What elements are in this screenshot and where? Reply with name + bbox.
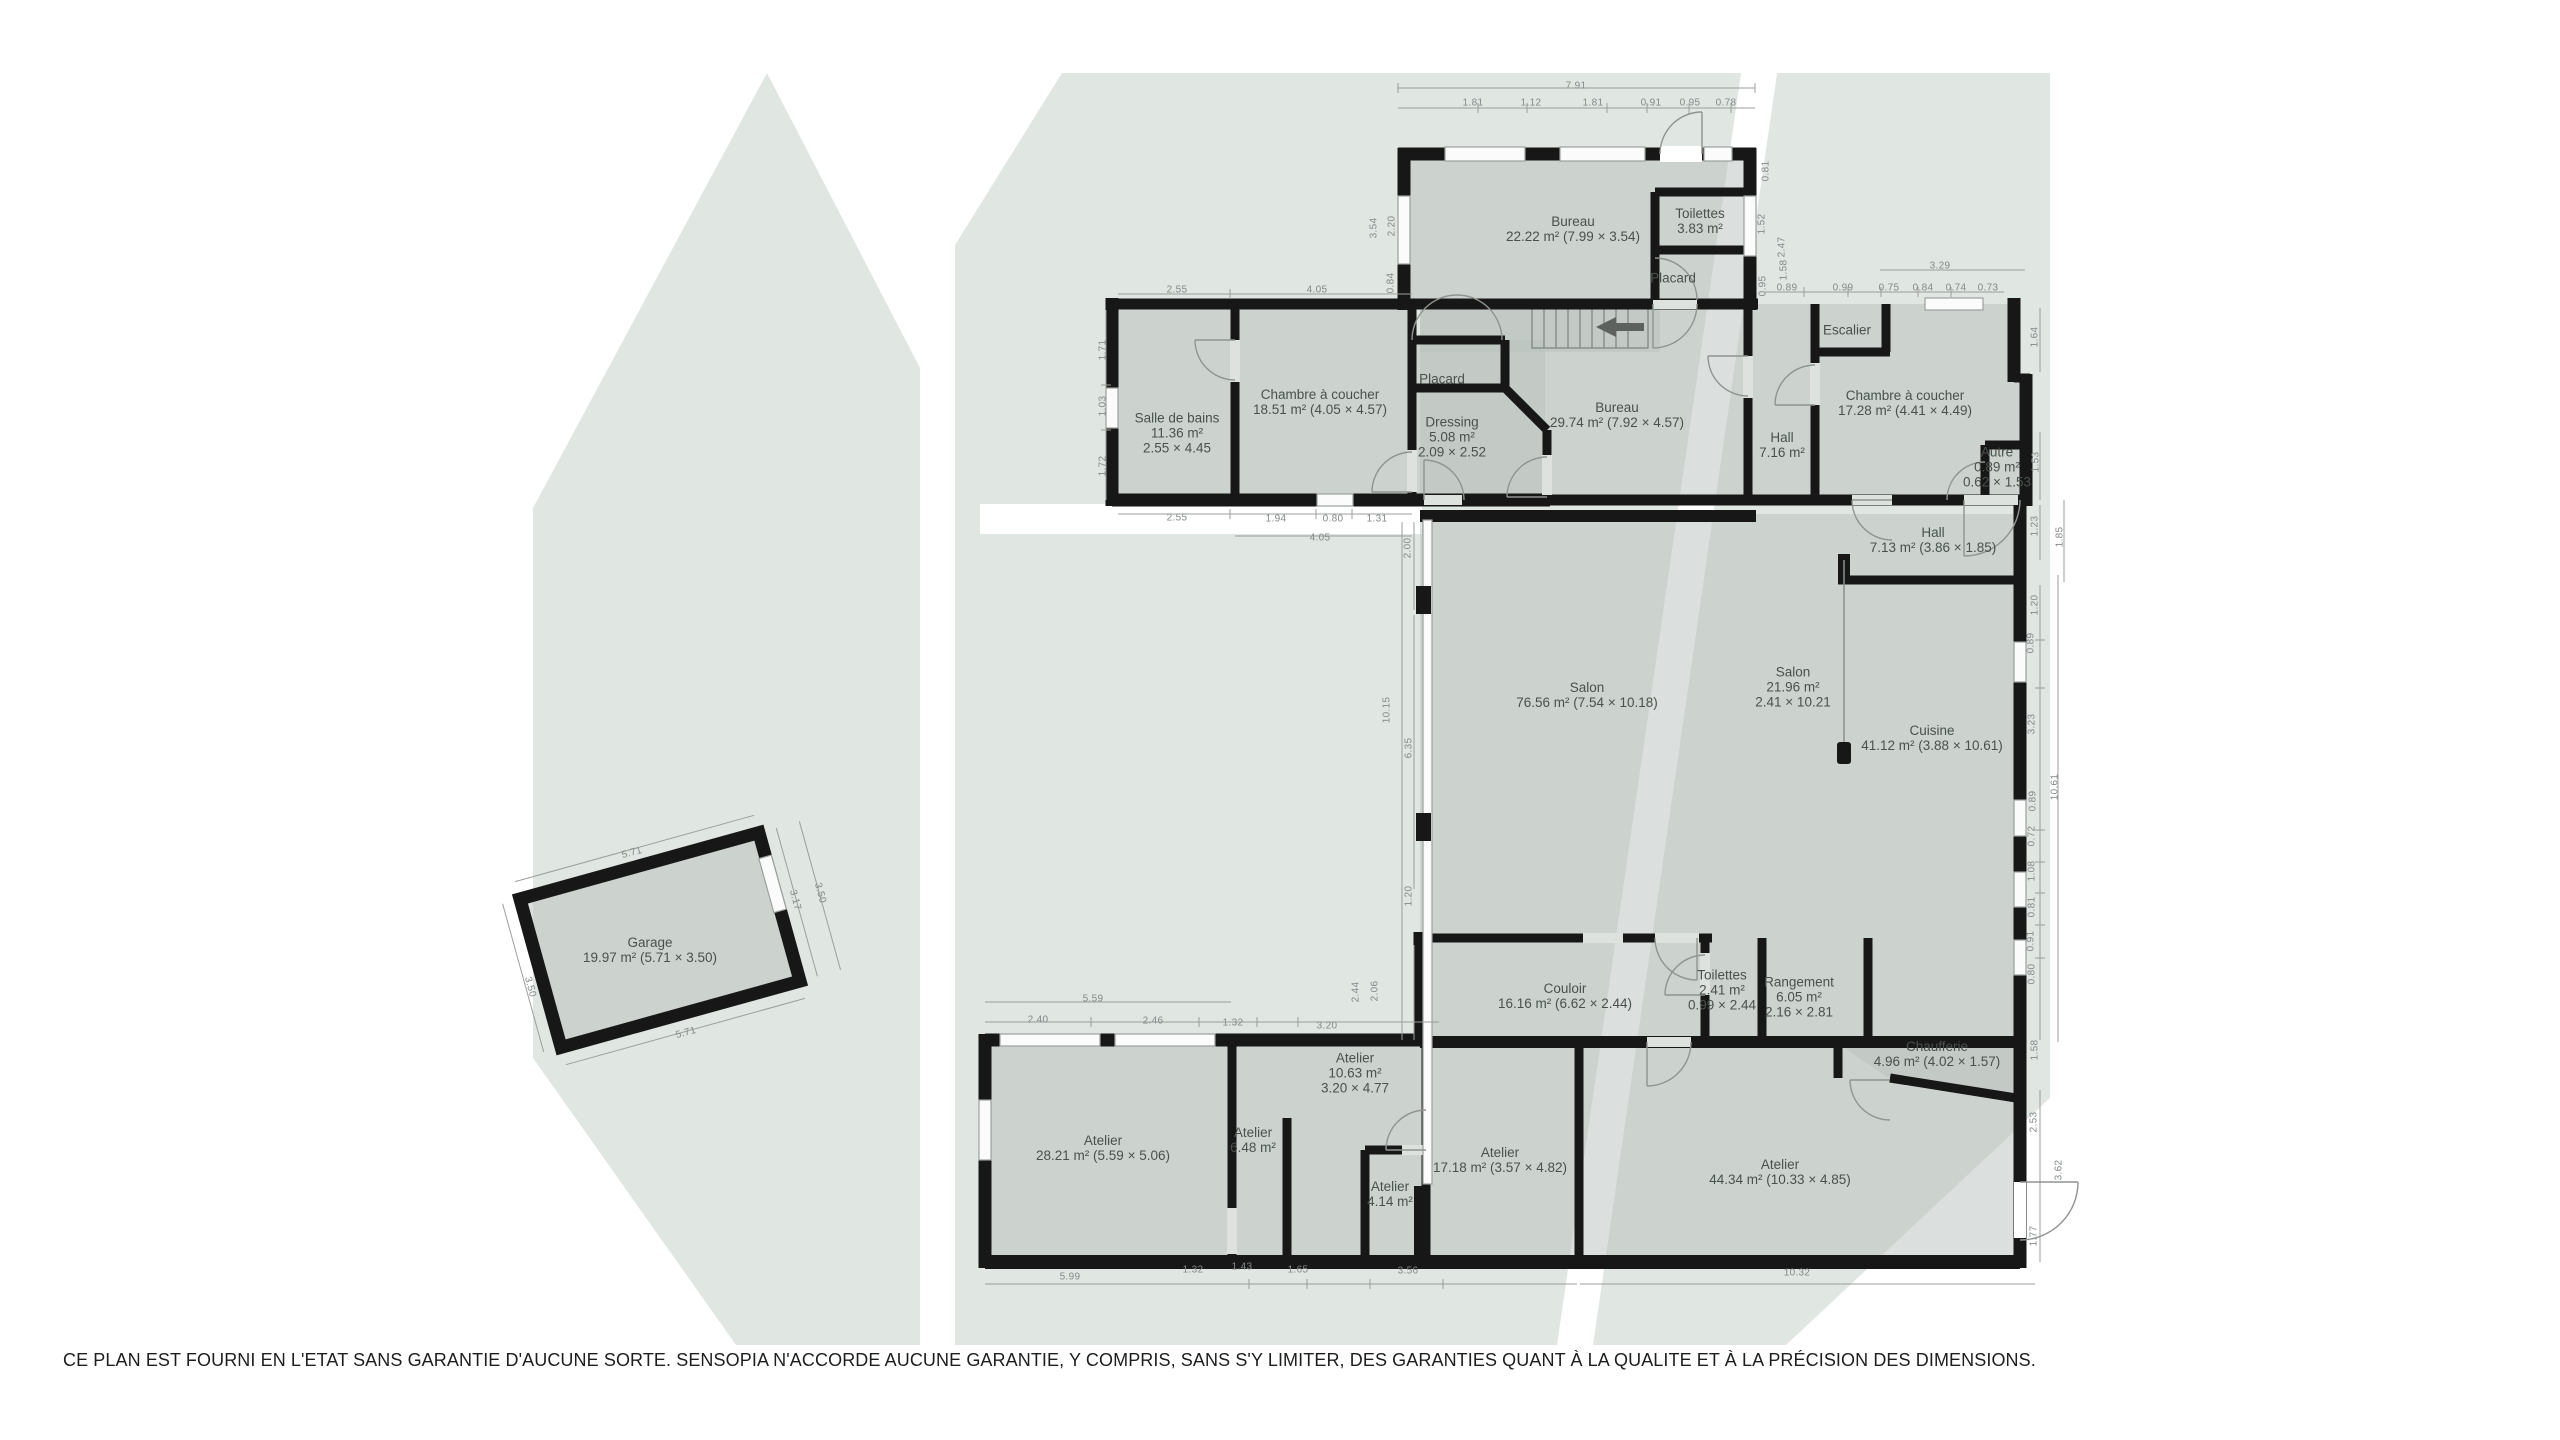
footer-disclaimer: CE PLAN EST FOURNI EN L'ETAT SANS GARANT… (63, 1350, 2036, 1371)
floor-plan-drawing (0, 0, 2560, 1440)
floor-plan-page: Bureau22.22 m² (7.99 × 3.54)Toilettes3.8… (0, 0, 2560, 1440)
